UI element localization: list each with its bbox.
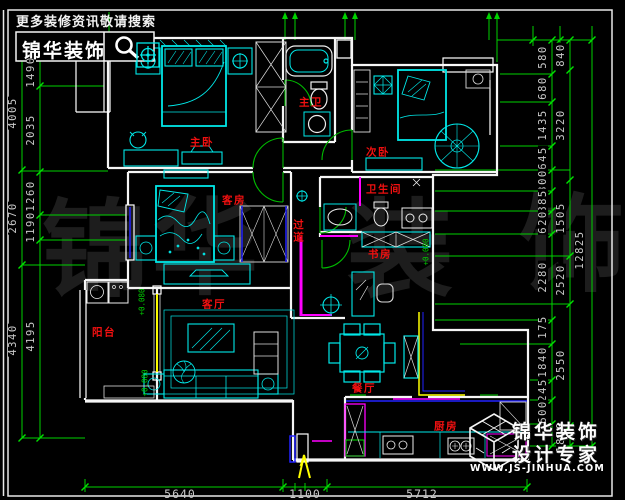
dim-left-inner-1: 2035 [26, 113, 36, 146]
dim-right-inner-6: 620 [538, 209, 548, 234]
dim-right-inner-9: 1840 [538, 345, 548, 378]
furniture-living-room [144, 310, 294, 398]
room-label-guest-room: 客房 [222, 193, 246, 208]
furniture-study [320, 232, 430, 316]
balcony-tag-bottom: +0.080 [141, 369, 150, 396]
dim-left-outer-0: 4005 [8, 96, 18, 129]
room-label-hallway: 过道 [291, 219, 306, 244]
floorplan-sheet: 锦 华 装 饰 [0, 0, 625, 500]
room-label-kitchen: 厨房 [434, 419, 458, 434]
balcony-tag-top: +0.080 [138, 288, 147, 315]
room-label-master-bedroom: 主卧 [190, 135, 214, 150]
pipes [419, 312, 465, 395]
dim-right-middle-3: 2520 [556, 263, 566, 296]
header-tagline: 更多装修资讯敬请搜索 [16, 11, 156, 30]
dim-right-inner-7: 2280 [538, 260, 548, 293]
footer-url: WWW.JS-JINHUA.COM [470, 463, 605, 474]
room-label-second-bedroom: 次卧 [366, 145, 390, 160]
dim-right-inner-0: 580 [538, 44, 548, 69]
windows [76, 55, 493, 398]
dim-bottom-1: 1100 [289, 488, 321, 500]
room-label-balcony: 阳台 [92, 325, 116, 340]
dim-right-inner-3: 645 [538, 145, 548, 170]
dim-left-outer-2: 4340 [8, 323, 18, 356]
dim-left-outer-1: 2670 [8, 201, 18, 234]
balcony-slider-door [154, 294, 160, 372]
window-cores [130, 207, 527, 462]
dim-left-inner-2: 1260 [26, 179, 36, 212]
room-label-bathroom: 卫生间 [366, 182, 402, 197]
dim-bottom-2: 5712 [406, 488, 438, 500]
dim-right-inner-2: 1435 [538, 108, 548, 141]
dim-right-inner-1: 680 [538, 75, 548, 100]
room-label-study: 书房 [368, 247, 392, 262]
elevation-tag: +0.000 [422, 238, 431, 265]
furniture-guest-room [136, 170, 288, 284]
dim-bottom-0: 5640 [164, 488, 196, 500]
dim-right-middle-1: 3220 [556, 108, 566, 141]
dim-right-inner-8: 175 [538, 314, 548, 339]
dim-left-inner-3: 1190 [26, 210, 36, 243]
room-label-master-bath: 主卫 [299, 95, 323, 110]
dim-right-middle-0: 840 [556, 42, 566, 67]
dim-right-outer-0: 12825 [575, 229, 585, 270]
fixtures-bathroom [296, 190, 432, 230]
walls-thick [85, 401, 528, 460]
room-label-living-room: 客厅 [202, 297, 226, 312]
room-label-dining-room: 餐厅 [352, 381, 376, 396]
furniture-dining [329, 324, 418, 382]
dim-arrowheads [282, 12, 500, 19]
dim-right-middle-4: 2550 [556, 348, 566, 381]
header-brand: 锦华装饰 [22, 36, 106, 63]
dim-right-middle-2: 1505 [556, 201, 566, 234]
dim-left-inner-4: 4195 [26, 319, 36, 352]
